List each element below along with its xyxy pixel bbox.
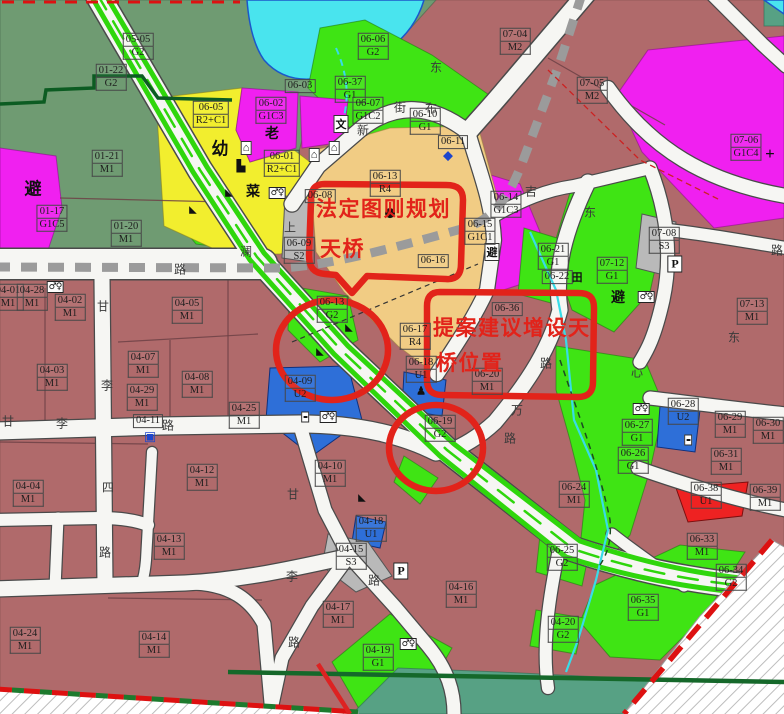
parcel-code: 04-28 [17, 284, 48, 298]
parcel-use: G2 [358, 47, 389, 60]
parcel-code: 01-17 [36, 205, 67, 219]
parcel-code: 06-35 [628, 594, 659, 608]
parcel-use: G1 [622, 433, 653, 446]
road-name-char: 澜 [240, 243, 252, 260]
slope-icon: ◣ [316, 347, 324, 358]
parcel-use: G2 [547, 558, 578, 571]
market-char: 菜 [246, 181, 260, 201]
culture-char: 文 [334, 115, 349, 133]
road-name-char: 路 [540, 355, 552, 372]
parcel-use: M1 [154, 547, 185, 560]
parcel-code: 04-10 [315, 460, 346, 474]
elderly-char: 老 [265, 123, 279, 143]
road-name-char: 心 [631, 364, 643, 381]
parcel-label-04-13: 04-13M1 [154, 533, 185, 560]
parcel-label-01-21: 01-21M1 [92, 150, 123, 177]
parcel-code: 07-05 [577, 77, 608, 91]
parcel-code: 04-02 [55, 294, 86, 308]
parcel-label-01-22: 01-22G2 [96, 64, 127, 91]
toilet-icon: ♂♀ [320, 411, 337, 423]
parcel-code: 06-24 [559, 481, 590, 495]
parcel-use: M1 [172, 311, 203, 324]
parcel-use: G1 [628, 608, 659, 621]
toilet-icon: ♂♀ [400, 638, 417, 650]
parcel-use: M1 [687, 547, 718, 560]
road-name-char: 李 [101, 377, 113, 394]
road-name-char: 李 [56, 415, 68, 432]
parcel-label-04-16: 04-16M1 [446, 581, 477, 608]
parcel-label-06-07: 06-07G1C2 [352, 97, 383, 124]
parcel-code: 04-03 [37, 364, 68, 378]
bus-icon: ▣ [144, 430, 156, 445]
parcel-use: M1 [315, 474, 346, 487]
parcel-code: 06-05 [193, 101, 229, 115]
parcel-code: 04-18 [356, 515, 387, 529]
parcel-label-06-03: 06-03 [285, 79, 316, 93]
parcel-label-01-20: 01-20M1 [111, 220, 142, 247]
parcel-use: M1 [187, 478, 218, 491]
parcel-code: 06-28 [668, 398, 699, 412]
parcel-label-06-21: 06-21G1 [538, 243, 569, 270]
parcel-label-04-05: 04-05M1 [172, 297, 203, 324]
parcel-code: 07-06 [730, 134, 761, 148]
parcel-use: G2 [123, 47, 154, 60]
parcel-code: 06-19 [425, 415, 456, 429]
parcel-label-04-09: 04-09U2 [285, 375, 316, 402]
parcel-use: U1 [356, 529, 387, 542]
road-name-char: 甘 [97, 298, 109, 315]
parcel-code: 06-37 [335, 76, 366, 90]
parcel-use: M1 [111, 234, 142, 247]
road-name-char: 甘 [2, 413, 14, 430]
parcel-code: 06-34 [716, 564, 747, 578]
parcel-use: M1 [753, 431, 784, 444]
parcel-use: G1 [363, 658, 394, 671]
road-name-char: 路 [174, 261, 186, 278]
parcel-code: 06-14 [490, 191, 521, 205]
parcel-code: 04-25 [229, 402, 260, 416]
shelter-char: 避 [611, 287, 625, 307]
parcel-label-06-38: 06-38U1 [691, 482, 722, 509]
parcel-use: M2 [577, 91, 608, 104]
parcel-use: G2 [96, 78, 127, 91]
road-name-char: 甘 [287, 486, 299, 503]
parcel-label-06-15: 06-15G1C1 [464, 218, 495, 245]
parcel-use: G1C1 [464, 232, 495, 245]
parcel-code: 06-09 [284, 237, 315, 251]
parcel-label-06-28: 06-28U2 [668, 398, 699, 425]
parcel-label-06-10: 06-10G1 [410, 108, 441, 135]
parcel-label-07-05: 07-05M2 [577, 77, 608, 104]
parcel-label-06-19: 06-19G2 [425, 415, 456, 442]
road-name-char: 东 [430, 59, 442, 76]
parcel-code: 01-20 [111, 220, 142, 234]
road-name-char: 路 [288, 634, 300, 651]
parcel-label-04-24: 04-24M1 [10, 627, 41, 654]
parcel-use: M1 [13, 494, 44, 507]
parcel-code: 06-22 [542, 270, 573, 284]
parcel-label-06-29: 06-29M1 [715, 411, 746, 438]
parcel-code: 04-14 [139, 631, 170, 645]
facility-icon: ⌂ [241, 141, 252, 155]
slope-icon: ◣ [189, 205, 197, 216]
parcel-use: M1 [182, 385, 213, 398]
parcel-code: 06-29 [715, 411, 746, 425]
parcel-code: 04-12 [187, 464, 218, 478]
parcel-code: 06-26 [618, 447, 649, 461]
parcel-code: 04-15 [336, 543, 367, 557]
parcel-use: M1 [17, 298, 48, 311]
parcel-use: M2 [500, 42, 531, 55]
parcel-label-06-01: 06-01R2+C1 [264, 150, 300, 177]
parcel-label-06-26: 06-26G1 [618, 447, 649, 474]
road-name-char: 路 [162, 417, 174, 434]
parcel-code: 06-17 [400, 323, 431, 337]
shelter-char: 避 [485, 243, 500, 261]
parcel-label-04-25: 04-25M1 [229, 402, 260, 429]
parcel-use: S3 [336, 557, 367, 570]
parcel-code: 06-16 [418, 254, 449, 268]
parcel-use: U1 [691, 496, 722, 509]
parcel-label-04-10: 04-10M1 [315, 460, 346, 487]
parcel-label-05-05: 05-05G2 [123, 33, 154, 60]
parcel-label-06-05: 06-05R2+C1 [193, 101, 229, 128]
parcel-label-06-31: 06-31M1 [711, 448, 742, 475]
parcel-label-04-08: 04-08M1 [182, 371, 213, 398]
parcel-label-06-06: 06-06G2 [358, 33, 389, 60]
parcel-label-06-18: 06-18U1 [406, 356, 437, 383]
parcel-use: M1 [715, 425, 746, 438]
parcel-label-06-17: 06-17R4 [400, 323, 431, 350]
parcel-label-07-08: 07-08S3 [649, 227, 680, 254]
parcel-code: 04-07 [128, 351, 159, 365]
parcel-code: 04-04 [13, 480, 44, 494]
parcel-code: 07-08 [649, 227, 680, 241]
parcel-use: M1 [472, 382, 503, 395]
parcel-code: 04-16 [446, 581, 477, 595]
parcel-use: M1 [323, 615, 354, 628]
parcel-code: 06-33 [687, 533, 718, 547]
farmland-char: 田 [572, 269, 583, 285]
parcel-code: 06-38 [691, 482, 722, 496]
parcel-use: M1 [446, 595, 477, 608]
parcel-code: 07-04 [500, 28, 531, 42]
parcel-code: 06-13 [370, 170, 401, 184]
parcel-code: 06-18 [406, 356, 437, 370]
parcel-label-04-03: 04-03M1 [37, 364, 68, 391]
parcel-code: 06-39 [750, 484, 781, 498]
annotation-text-proposal-line1: 提案建议增设天 [433, 312, 591, 342]
substation-icon: ▪▪ [684, 435, 692, 446]
parcel-label-04-04: 04-04M1 [13, 480, 44, 507]
parcel-use: G1C2 [352, 111, 383, 124]
parcel-label-01-17: 01-17G1C5 [36, 205, 67, 232]
parcel-label-06-09: 06-09S2 [284, 237, 315, 264]
parcel-code: 04-17 [323, 601, 354, 615]
house-icon: ⌂ [309, 148, 320, 162]
parcel-use: R2+C1 [264, 164, 300, 177]
parcel-label-07-06: 07-06G1C4 [730, 134, 761, 161]
parcel-label-04-02: 04-02M1 [55, 294, 86, 321]
house-icon: ⌂ [329, 141, 340, 155]
parcel-label-04-20: 04-20G2 [548, 616, 579, 643]
parcel-use: M1 [559, 495, 590, 508]
parcel-code: 04-08 [182, 371, 213, 385]
parcel-use: M1 [711, 462, 742, 475]
parcel-label-04-15: 04-15S3 [336, 543, 367, 570]
parcel-use: M1 [37, 378, 68, 391]
parking-icon: P [667, 256, 682, 273]
parcel-use: G1 [597, 271, 628, 284]
map-canvas [0, 0, 784, 714]
parcel-use: M1 [737, 312, 768, 325]
parcel-label-04-18: 04-18U1 [356, 515, 387, 542]
parcel-label-06-33: 06-33M1 [687, 533, 718, 560]
parcel-use: S2 [284, 251, 315, 264]
parcel-code: 06-02 [255, 97, 286, 111]
parcel-use: M1 [750, 498, 781, 511]
parcel-use: G1 [618, 461, 649, 474]
parcel-label-06-22: 06-22 [542, 270, 573, 284]
parcel-label-06-14: 06-14G1C3 [490, 191, 521, 218]
parcel-label-06-39: 06-39M1 [750, 484, 781, 511]
road-name-char: 万 [511, 402, 523, 419]
parcel-label-07-04: 07-04M2 [500, 28, 531, 55]
parcel-code: 07-13 [737, 298, 768, 312]
parcel-code: 06-25 [547, 544, 578, 558]
road-name-char: 东 [584, 204, 596, 221]
annotation-text-statutory-line2: 天桥 [320, 233, 365, 263]
parcel-code: 04-20 [548, 616, 579, 630]
parcel-code: 04-13 [154, 533, 185, 547]
parcel-label-06-25: 06-25G2 [547, 544, 578, 571]
parcel-code: 06-07 [352, 97, 383, 111]
boat-icon: ▙ [237, 160, 245, 173]
parcel-use: M1 [229, 416, 260, 429]
station-icon: ◆ [443, 149, 453, 164]
parcel-label-04-29: 04-29M1 [127, 384, 158, 411]
parcel-label-06-02: 06-02G1C3 [255, 97, 286, 124]
slope-icon: ◣ [345, 323, 353, 334]
road-name-char: 吉 [525, 183, 537, 200]
parcel-use: G1C4 [730, 148, 761, 161]
parcel-label-06-24: 06-24M1 [559, 481, 590, 508]
parcel-use: G2 [317, 310, 348, 323]
parcel-use: R4 [400, 337, 431, 350]
annotation-text-statutory-line1: 法定图则规划 [316, 193, 451, 223]
parcel-use: S3 [649, 241, 680, 254]
parcel-code: 06-15 [464, 218, 495, 232]
toilet-icon: ♂♀ [47, 281, 64, 293]
parcel-code: 04-29 [127, 384, 158, 398]
shelter-char: 避 [25, 175, 42, 200]
road-name-char: 上 [284, 219, 296, 236]
road-name-char: 四 [102, 479, 114, 496]
parcel-code: 04-11 [133, 414, 163, 428]
parcel-code: 04-19 [363, 644, 394, 658]
parcel-use: M1 [10, 641, 41, 654]
road-name-char: 东 [728, 329, 740, 346]
parcel-use: G1C5 [36, 219, 67, 232]
parcel-use: G1 [410, 122, 441, 135]
parcel-code: 06-13 [317, 296, 348, 310]
parcel-code: 04-24 [10, 627, 41, 641]
parcel-use: G1C3 [255, 111, 286, 124]
parcel-label-06-34: 06-34G2 [716, 564, 747, 591]
parcel-use: M1 [128, 365, 159, 378]
substation-icon: ▪▪ [301, 412, 309, 423]
parcel-label-04-12: 04-12M1 [187, 464, 218, 491]
person-icon: ♟ [416, 385, 426, 398]
road-name-char: 新 [357, 122, 369, 139]
road-name-char: 路 [771, 242, 783, 259]
parcel-label-06-30: 06-30M1 [753, 417, 784, 444]
parcel-use: R2+C1 [193, 115, 229, 128]
parcel-code: 06-06 [358, 33, 389, 47]
slope-icon: ◣ [358, 493, 366, 504]
parcel-use: U1 [406, 370, 437, 383]
parcel-use: M1 [92, 164, 123, 177]
parcel-label-07-13: 07-13M1 [737, 298, 768, 325]
parcel-use: U2 [285, 389, 316, 402]
parcel-label-04-17: 04-17M1 [323, 601, 354, 628]
zoning-map: 05-05G201-22G206-06G206-37G107-04M207-05… [0, 0, 784, 714]
toilet-icon: ♂♀ [269, 187, 286, 199]
parcel-code: 04-09 [285, 375, 316, 389]
parcel-code: 06-10 [410, 108, 441, 122]
parcel-label-04-19: 04-19G1 [363, 644, 394, 671]
road-name-char: 路 [368, 572, 380, 589]
parcel-label-04-28: 04-28M1 [17, 284, 48, 311]
parcel-label-06-11: 06-11 [438, 135, 468, 149]
parcel-code: 06-01 [264, 150, 300, 164]
annotation-text-proposal-line2: 桥位置 [436, 347, 504, 377]
toilet-icon: ♂♀ [633, 403, 650, 415]
hospital-cross-icon: + [765, 144, 775, 164]
parcel-label-04-07: 04-07M1 [128, 351, 159, 378]
parcel-code: 06-30 [753, 417, 784, 431]
parcel-label-07-12: 07-12G1 [597, 257, 628, 284]
parcel-label-04-11: 04-11 [133, 414, 163, 428]
parcel-code: 06-11 [438, 135, 468, 149]
parcel-label-06-27: 06-27G1 [622, 419, 653, 446]
parcel-use: G1C3 [490, 205, 521, 218]
parcel-code: 05-05 [123, 33, 154, 47]
parcel-code: 07-12 [597, 257, 628, 271]
parcel-label-06-35: 06-35G1 [628, 594, 659, 621]
parcel-code: 01-21 [92, 150, 123, 164]
road-name-char: 路 [99, 544, 111, 561]
parcel-use: M1 [139, 645, 170, 658]
parcel-use: G1 [538, 257, 569, 270]
parcel-use: G2 [548, 630, 579, 643]
parcel-use: M1 [55, 308, 86, 321]
parcel-label-04-14: 04-14M1 [139, 631, 170, 658]
road-name-char: 街 [394, 99, 406, 116]
parcel-use: U2 [668, 412, 699, 425]
parcel-code: 06-21 [538, 243, 569, 257]
kindergarten-char: 幼 [212, 135, 229, 160]
parcel-use: G2 [425, 429, 456, 442]
parcel-code: 04-05 [172, 297, 203, 311]
parcel-code: 06-03 [285, 79, 316, 93]
road-name-char: 李 [286, 568, 298, 585]
road-name-char: 路 [504, 430, 516, 447]
parcel-use: M1 [127, 398, 158, 411]
parcel-code: 01-22 [96, 64, 127, 78]
parcel-label-06-13: 06-13G2 [317, 296, 348, 323]
parcel-code: 06-27 [622, 419, 653, 433]
slope-icon: ◣ [225, 188, 233, 199]
parcel-code: 06-31 [711, 448, 742, 462]
parcel-label-06-16: 06-16 [418, 254, 449, 268]
toilet-icon: ♂♀ [638, 291, 655, 303]
parking-icon: P [393, 563, 408, 580]
parcel-use: G2 [716, 578, 747, 591]
